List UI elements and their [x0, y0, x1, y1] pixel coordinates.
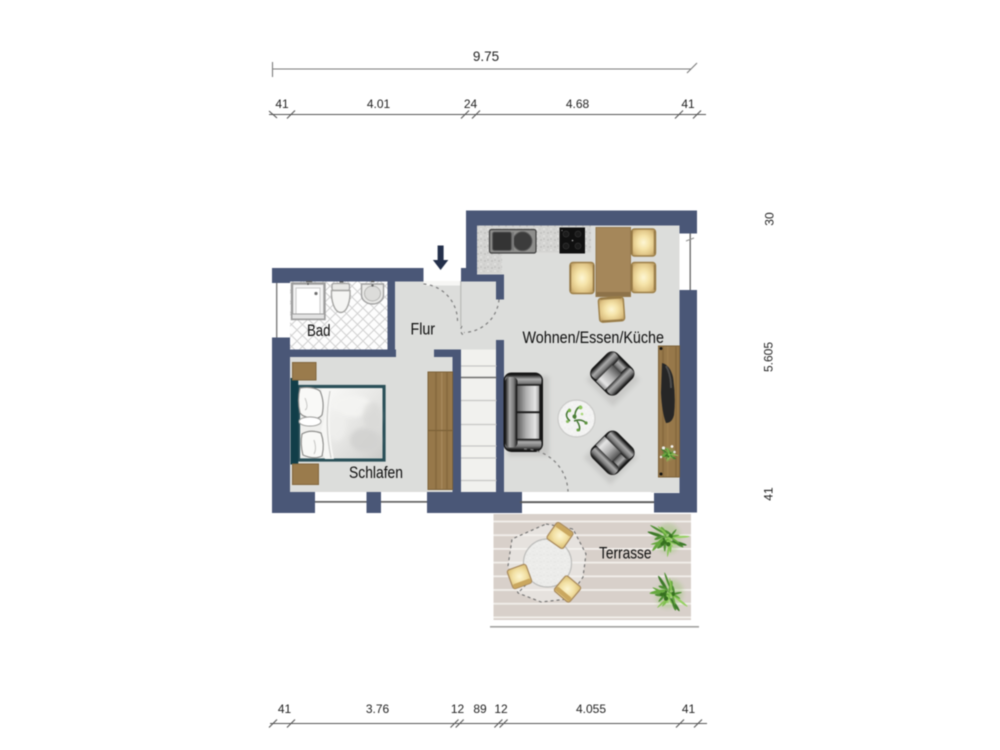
svg-text:41: 41	[682, 702, 696, 716]
svg-text:Wohnen/Essen/Küche: Wohnen/Essen/Küche	[523, 328, 665, 347]
svg-text:12: 12	[494, 702, 508, 716]
svg-text:Flur: Flur	[411, 320, 436, 339]
svg-text:4.01: 4.01	[367, 97, 391, 111]
svg-text:41: 41	[762, 487, 776, 501]
svg-text:Bad: Bad	[307, 321, 331, 340]
svg-text:3.76: 3.76	[366, 702, 390, 716]
svg-text:30: 30	[763, 212, 777, 226]
svg-text:12: 12	[451, 702, 465, 716]
svg-text:41: 41	[275, 97, 289, 111]
svg-text:4.055: 4.055	[576, 702, 606, 716]
svg-text:24: 24	[464, 97, 478, 111]
svg-text:Terrasse: Terrasse	[599, 544, 652, 563]
svg-text:Schlafen: Schlafen	[349, 463, 403, 482]
svg-text:5.605: 5.605	[762, 342, 776, 372]
svg-text:41: 41	[278, 702, 292, 716]
svg-text:4.68: 4.68	[566, 97, 590, 111]
svg-text:89: 89	[473, 702, 487, 716]
svg-text:41: 41	[681, 97, 695, 111]
svg-text:9.75: 9.75	[473, 49, 499, 64]
